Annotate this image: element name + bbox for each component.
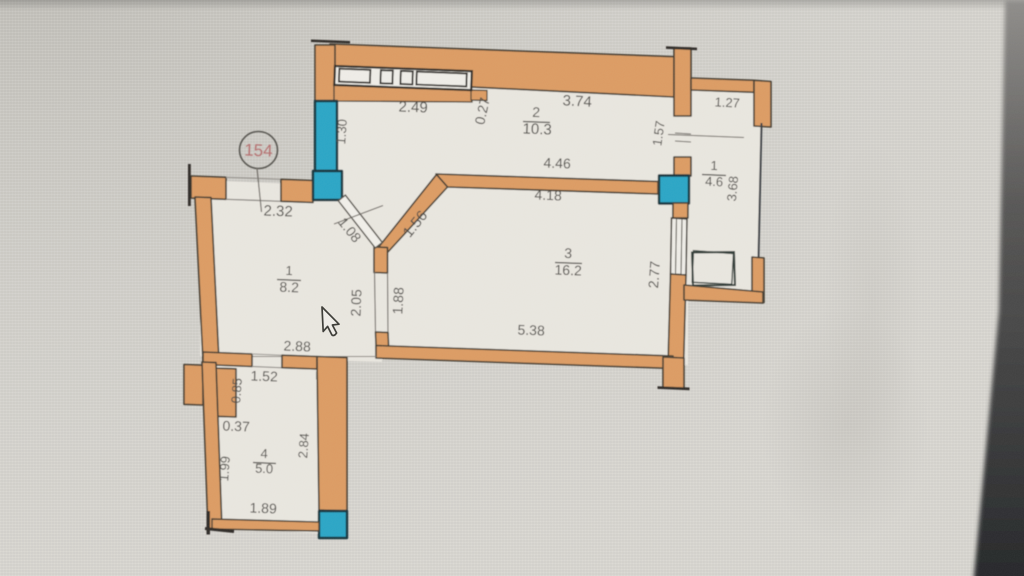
svg-text:16.2: 16.2 [554, 262, 582, 279]
svg-text:4.46: 4.46 [543, 155, 571, 172]
svg-text:2: 2 [532, 104, 541, 120]
svg-text:1.52: 1.52 [250, 368, 278, 385]
svg-text:1.30: 1.30 [333, 119, 350, 145]
svg-text:1: 1 [285, 263, 293, 278]
svg-text:3: 3 [564, 245, 573, 261]
svg-text:1.88: 1.88 [389, 287, 406, 315]
svg-text:2.05: 2.05 [348, 289, 365, 317]
svg-text:2.88: 2.88 [283, 338, 311, 355]
svg-text:8.2: 8.2 [279, 279, 299, 296]
svg-text:3.68: 3.68 [724, 175, 741, 202]
svg-text:4: 4 [260, 446, 268, 461]
svg-text:4.18: 4.18 [534, 187, 562, 204]
svg-text:3.74: 3.74 [562, 92, 592, 111]
svg-text:5.38: 5.38 [517, 322, 545, 339]
svg-text:154: 154 [244, 141, 273, 161]
svg-text:2.77: 2.77 [645, 260, 663, 289]
svg-text:1.27: 1.27 [714, 94, 740, 110]
svg-text:5.0: 5.0 [255, 461, 274, 477]
svg-text:1: 1 [710, 158, 718, 173]
svg-text:1.89: 1.89 [249, 500, 277, 517]
svg-text:10.3: 10.3 [522, 120, 552, 138]
svg-text:2.84: 2.84 [295, 433, 312, 459]
svg-text:4.6: 4.6 [705, 174, 724, 190]
svg-text:2.32: 2.32 [263, 202, 293, 220]
svg-text:0.85: 0.85 [228, 378, 245, 404]
svg-text:1.99: 1.99 [216, 456, 233, 482]
svg-text:2.49: 2.49 [398, 98, 428, 116]
svg-text:0.37: 0.37 [222, 418, 250, 435]
